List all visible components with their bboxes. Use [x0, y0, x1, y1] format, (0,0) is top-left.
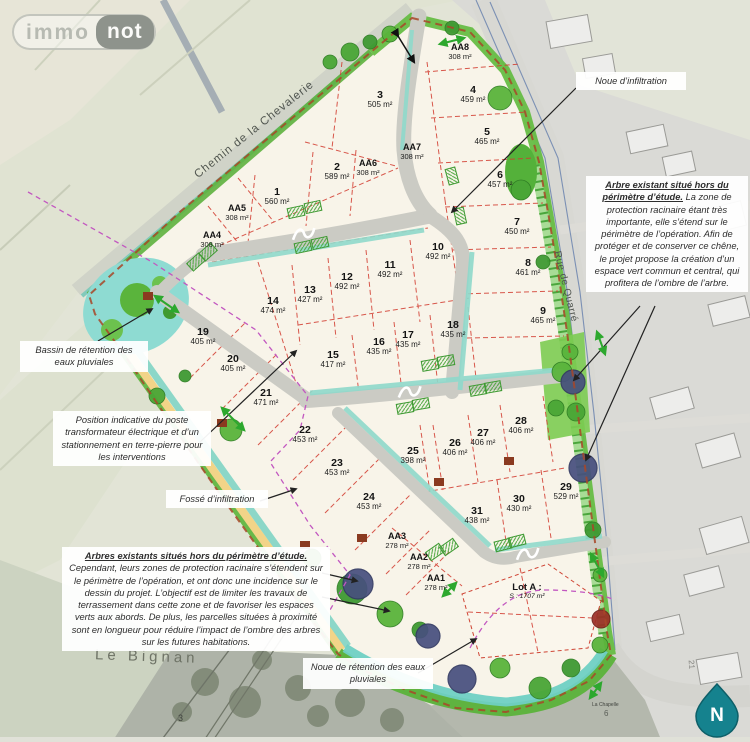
annotation-bassin-retention: Bassin de rétention des eaux pluviales	[20, 341, 148, 372]
site-plan-screenshot: immo not Chemin de la Chevalerie Rue de …	[0, 0, 750, 742]
logo-immo-text: immo	[26, 22, 90, 43]
lot-label-9: 9465 m²	[531, 306, 556, 326]
immonot-logo: immo not	[12, 14, 156, 50]
lot-label-29: 29529 m²	[554, 482, 579, 502]
annotation-poste-transformateur: Position indicative du poste transformat…	[53, 411, 211, 466]
lot-label-AA4: AA4308 m²	[200, 231, 223, 249]
lot-label-AA2: AA2278 m²	[407, 553, 430, 571]
lot-label-28: 28406 m²	[509, 416, 534, 436]
lot-label-8: 8461 m²	[516, 258, 541, 278]
lot-label-3: 3505 m²	[368, 90, 393, 110]
building-number: 21	[687, 660, 697, 670]
lot-a-title: Lot A :	[509, 583, 544, 593]
lot-label-16: 16435 m²	[367, 337, 392, 357]
annotation-noue-retention: Noue de rétention des eaux pluviales	[303, 658, 433, 689]
logo-not-text: not	[96, 15, 154, 49]
lot-label-1: 1560 m²	[265, 187, 290, 207]
chapelle-number: 6	[604, 709, 608, 718]
lot-label-30: 30430 m²	[507, 494, 532, 514]
lot-label-27: 27406 m²	[471, 428, 496, 448]
place-label-chapelle: La Chapelle	[592, 702, 619, 708]
cadastre-number: 3	[178, 713, 183, 723]
lot-label-7: 7450 m²	[505, 217, 530, 237]
lot-label-20: 20405 m²	[221, 354, 246, 374]
lot-label-AA3: AA3278 m²	[385, 532, 408, 550]
lot-label-24: 24453 m²	[357, 492, 382, 512]
lot-label-17: 17435 m²	[396, 330, 421, 350]
lot-label-26: 26406 m²	[443, 438, 468, 458]
lot-label-4: 4459 m²	[461, 85, 486, 105]
lot-label-2: 2589 m²	[325, 162, 350, 182]
lot-label-22: 22453 m²	[293, 425, 318, 445]
lot-label-11: 11492 m²	[378, 260, 403, 280]
lot-label-25: 25398 m²	[401, 446, 426, 466]
lot-label-10: 10492 m²	[426, 242, 451, 262]
lot-a-area: S : 1707 m²	[509, 593, 544, 600]
lot-label-15: 15417 m²	[321, 350, 346, 370]
annotation-noue-infiltration: Noue d’infiltration	[576, 72, 686, 90]
lot-label-AA7: AA7308 m²	[400, 143, 423, 161]
lot-label-31: 31438 m²	[465, 506, 490, 526]
lot-label-AA1: AA1278 m²	[424, 574, 447, 592]
lot-label-23: 23453 m²	[325, 458, 350, 478]
lot-label-19: 19405 m²	[191, 327, 216, 347]
lot-label-6: 6457 m²	[488, 170, 513, 190]
north-letter: N	[710, 705, 724, 727]
annotation-arbres-existants: Arbres existants situés hors du périmètr…	[62, 547, 330, 651]
lot-label-18: 18435 m²	[441, 320, 466, 340]
lot-label-14: 14474 m²	[261, 296, 286, 316]
lot-label-13: 13427 m²	[298, 285, 323, 305]
lot-label-21: 21471 m²	[254, 388, 279, 408]
lot-label-5: 5465 m²	[475, 127, 500, 147]
lot-label-12: 12492 m²	[335, 272, 360, 292]
lot-label-AA5: AA5308 m²	[225, 204, 248, 222]
annotation-arbre-existant: Arbre existant situé hors du périmètre d…	[586, 176, 748, 292]
annotation-fosse-infiltration: Fossé d’infiltration	[166, 490, 268, 508]
lot-label-AA8: AA8308 m²	[448, 43, 471, 61]
lot-a-label: Lot A : S : 1707 m²	[509, 583, 544, 601]
lot-label-AA6: AA6308 m²	[356, 159, 379, 177]
